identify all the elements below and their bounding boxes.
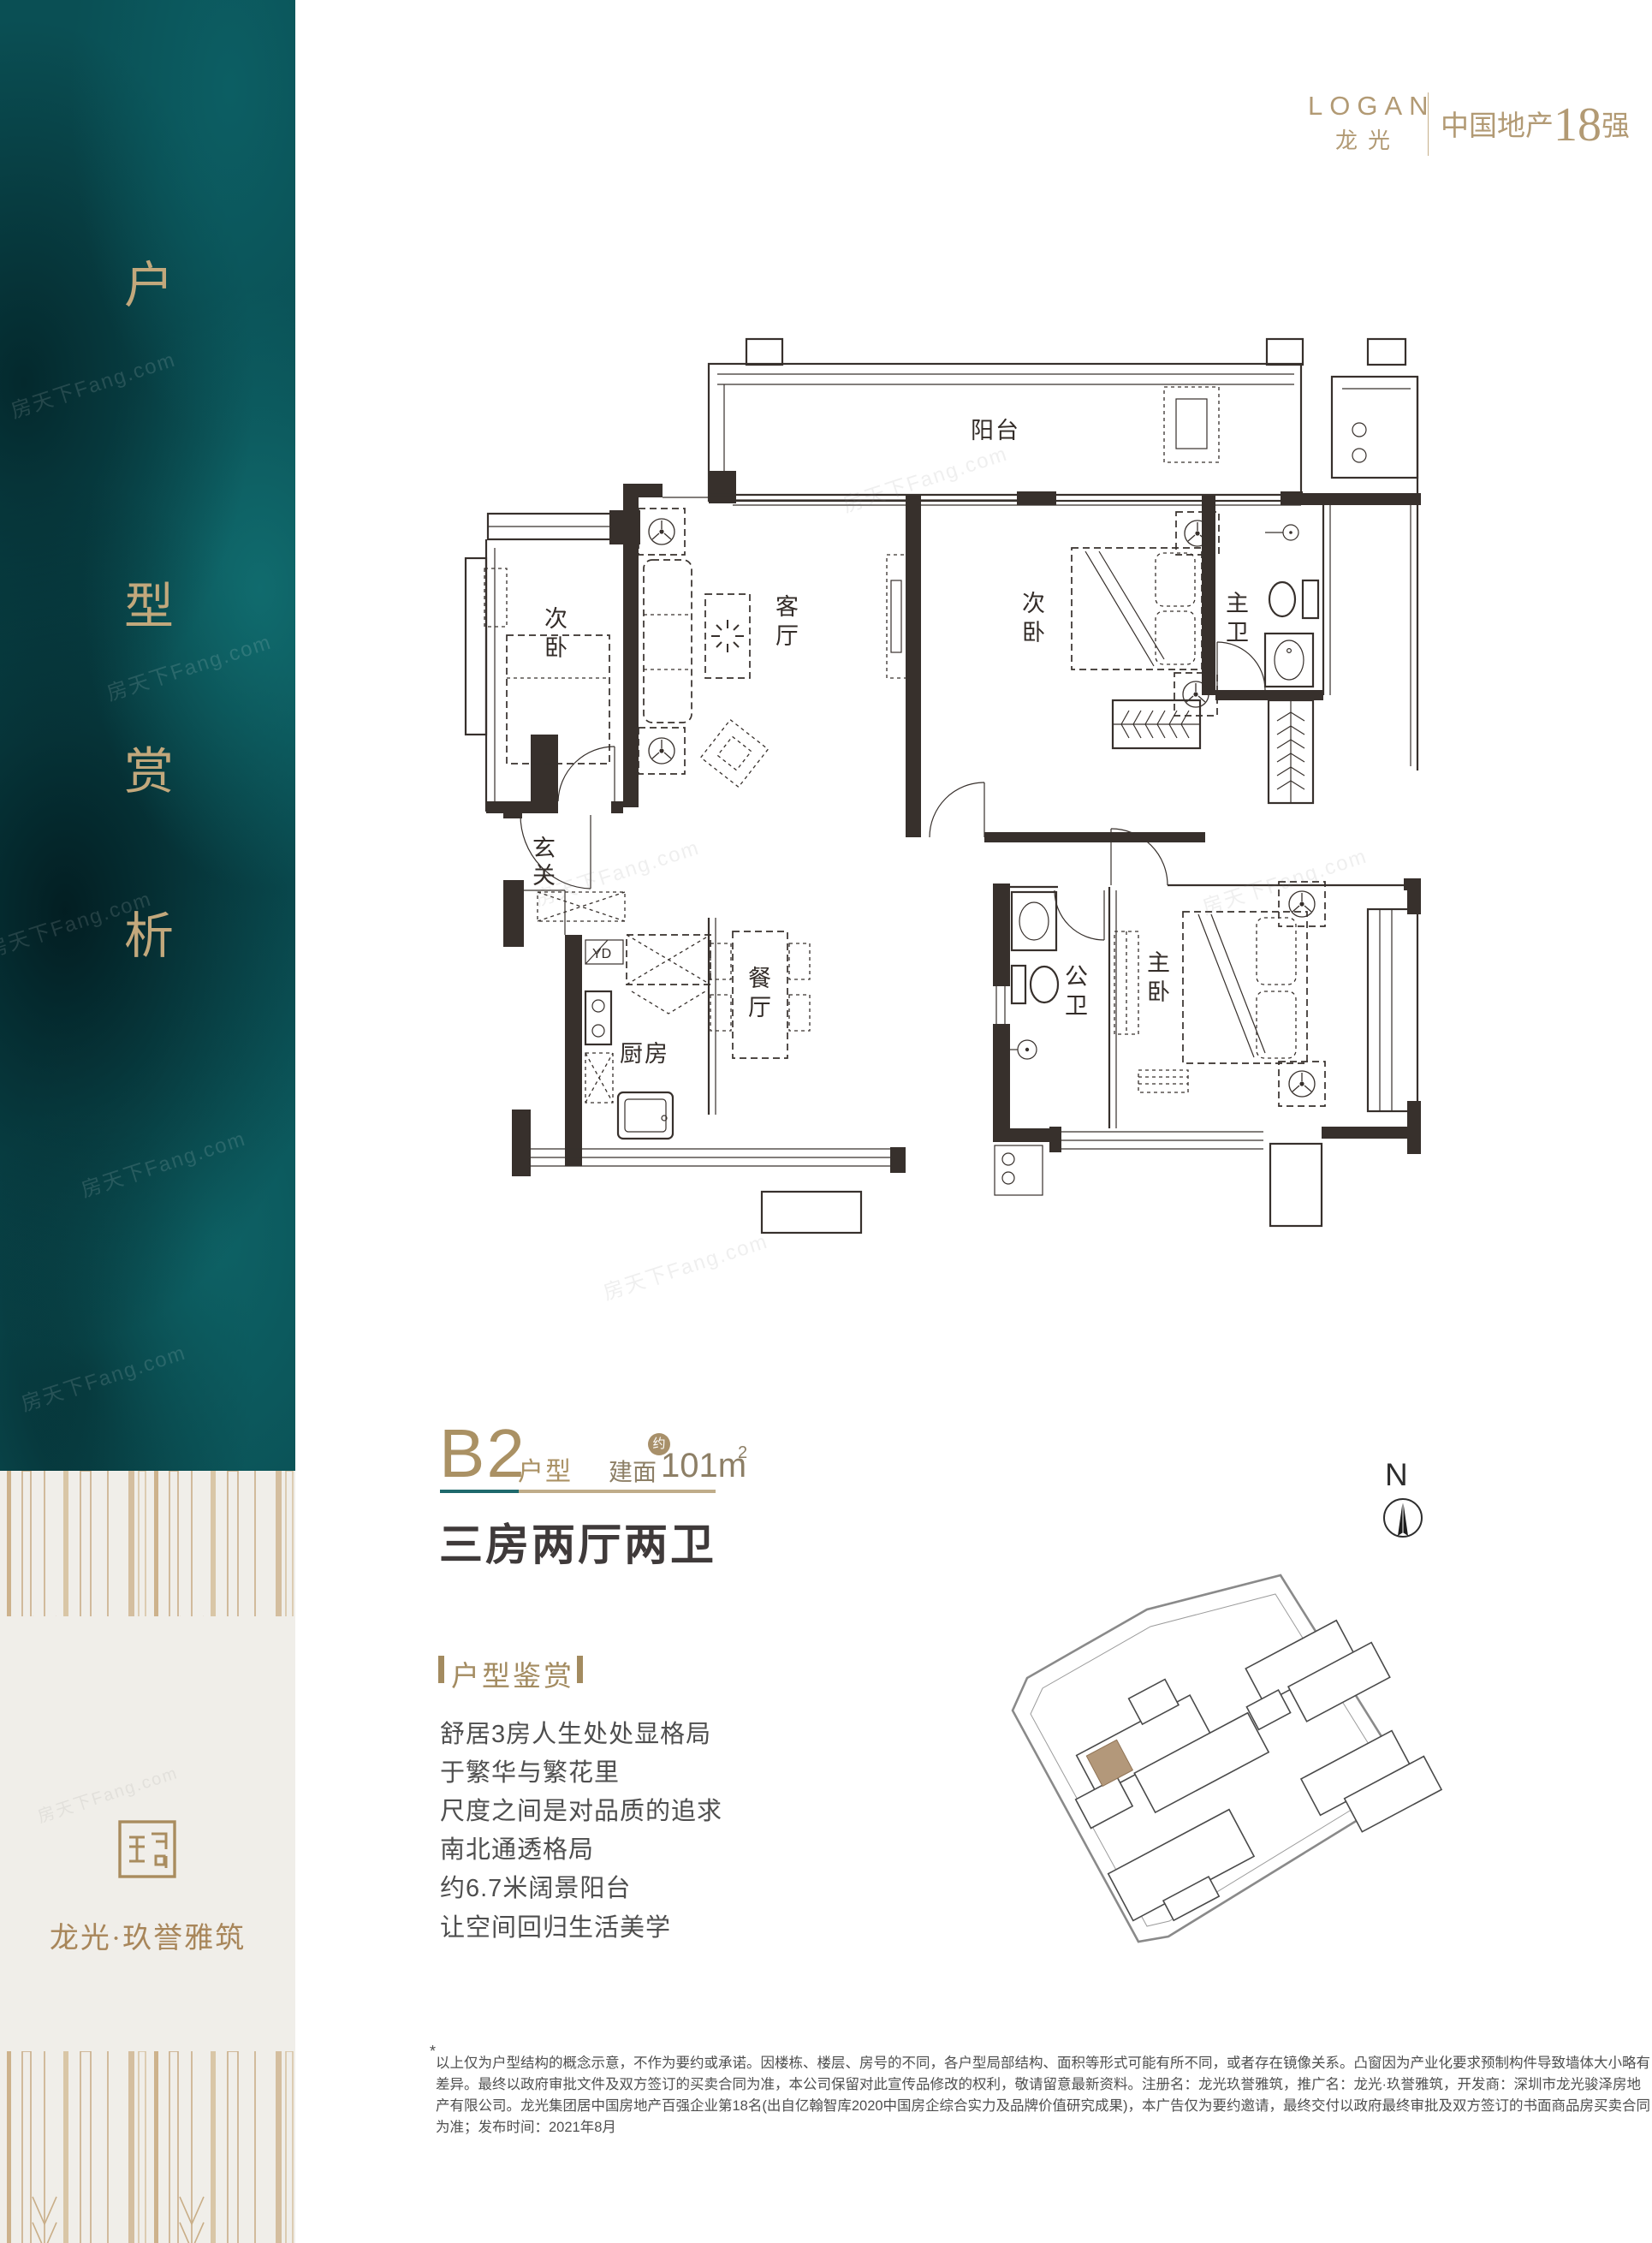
master-bedroom-label: 卧 — [1147, 979, 1172, 1005]
disclaimer-star: * — [430, 2043, 436, 2061]
rank-suffix: 强 — [1601, 110, 1630, 141]
sidebar-teal-texture: 户 型 赏 析 房天下Fang.com 房天下Fang.com 房天下Fang.… — [0, 0, 295, 1471]
bedroom-right-label: 卧 — [1022, 620, 1047, 646]
vertical-title-char: 析 — [118, 895, 180, 967]
compass-icon — [1380, 1495, 1426, 1541]
watermark: 房天下Fang.com — [7, 342, 180, 424]
floorplan-drawing: 阳台 次 卧 — [462, 317, 1455, 1310]
logan-logo-en: LOGAN — [1308, 91, 1435, 122]
foyer-label: 玄 — [532, 836, 557, 861]
vertical-title-char: 户 — [118, 245, 180, 317]
disclaimer-line: 产有限公司。龙光集团居中国房地产百强企业第18名(出自亿翰智库2020中国房企综… — [436, 2096, 1621, 2117]
dining-label: 餐 — [748, 966, 773, 991]
master-bath-label: 主 — [1226, 591, 1251, 616]
bedroom-left-label: 卧 — [544, 635, 569, 661]
bedroom-left: 次 卧 — [466, 484, 709, 813]
bedroom-right: 次 卧 — [906, 495, 1219, 842]
disclaimer-line: 为准；发布时间：2021年8月 — [436, 2117, 1621, 2139]
balcony: 阳台 — [709, 339, 1303, 505]
brand-emblem-icon — [118, 1820, 176, 1878]
highlights-title: 户型鉴赏 — [451, 1653, 574, 1694]
unit-code-suffix: 户型 — [518, 1450, 573, 1488]
siteplan-drawing — [984, 1558, 1515, 2038]
dining-label: 厅 — [748, 995, 773, 1020]
site-building-cluster-left — [1045, 1652, 1269, 1842]
highlight-bar-right — [577, 1656, 583, 1683]
compass-north-label: N — [1385, 1457, 1408, 1493]
kitchen-label: 厨房 — [620, 1041, 669, 1067]
bedroom-right-label: 次 — [1022, 591, 1047, 616]
guest-bath-label: 公 — [1065, 964, 1090, 990]
logan-logo-cn: 龙光 — [1335, 123, 1400, 155]
vertical-title-char: 赏 — [118, 731, 180, 803]
guest-bath-label: 卫 — [1065, 993, 1090, 1019]
rank-number: 18 — [1554, 98, 1601, 152]
logo-rank-line: 中国地产18强 — [1441, 101, 1630, 149]
bedroom-left-label: 次 — [544, 606, 569, 632]
area-value: 101m — [661, 1447, 746, 1485]
rank-prefix: 中国地产 — [1441, 110, 1554, 141]
foyer-label: 关 — [532, 863, 557, 889]
area-exponent: 2 — [738, 1443, 747, 1463]
living-room: 客 厅 — [639, 509, 907, 787]
master-bath-label: 卫 — [1226, 620, 1251, 646]
disclaimer-line: 差异。最终以政府审批文件及双方签订的买卖合同为准，本公司保留对此宣传品修改的权利… — [436, 2074, 1621, 2096]
brand-name: 龙光·玖誉雅筑 — [0, 1914, 295, 1956]
rooms-summary: 三房两厅两卫 — [439, 1509, 716, 1573]
yd-label: YD — [592, 947, 611, 961]
watermark: 房天下Fang.com — [17, 1336, 190, 1417]
highlight-bar-left — [438, 1656, 444, 1683]
disclaimer-line: 以上仅为户型结构的概念示意，不作为要约或承诺。因楼栋、楼层、房号的不同，各户型局… — [436, 2053, 1621, 2074]
highlight-item: 约6.7米阔景阳台 — [440, 1868, 631, 1904]
master-bath: 主 卫 — [1215, 377, 1417, 803]
site-building-cluster-right — [1301, 1723, 1441, 1846]
master-bedroom-label: 主 — [1147, 950, 1172, 976]
living-label: 客 — [775, 594, 800, 620]
dining: 餐 厅 — [710, 931, 810, 1058]
highlight-item: 尺度之间是对品质的追求 — [440, 1791, 722, 1827]
section-divider — [440, 1490, 716, 1493]
top-right-ledge — [1301, 339, 1421, 505]
site-building-cluster-top — [1231, 1610, 1390, 1743]
logo-divider — [1428, 92, 1429, 156]
unit-code: B2 — [439, 1414, 526, 1493]
living-label: 厅 — [775, 623, 800, 649]
area-label: 建面 — [609, 1454, 657, 1488]
kitchen: YD 厨房 — [565, 918, 716, 1147]
watermark: 房天下Fang.com — [77, 1121, 250, 1203]
foyer: 玄 关 — [503, 808, 625, 947]
deco-pattern-bottom — [0, 2051, 295, 2243]
highlight-item: 于繁华与繁花里 — [440, 1752, 620, 1788]
vertical-title-char: 型 — [118, 566, 180, 638]
master-bedroom: 主 卧 — [1111, 829, 1421, 1154]
site-building-slab-bottom — [1108, 1810, 1263, 1937]
highlight-item: 舒居3房人生处处显格局 — [440, 1714, 711, 1750]
highlight-item: 让空间回归生活美学 — [440, 1907, 671, 1943]
poster-page: { "brand_header": { "name_en": "LOGAN", … — [0, 0, 1652, 2243]
deco-pattern-top — [0, 1471, 295, 1616]
balcony-label: 阳台 — [971, 418, 1020, 443]
divider-teal-segment — [440, 1490, 519, 1493]
highlight-item: 南北通透格局 — [440, 1830, 594, 1865]
